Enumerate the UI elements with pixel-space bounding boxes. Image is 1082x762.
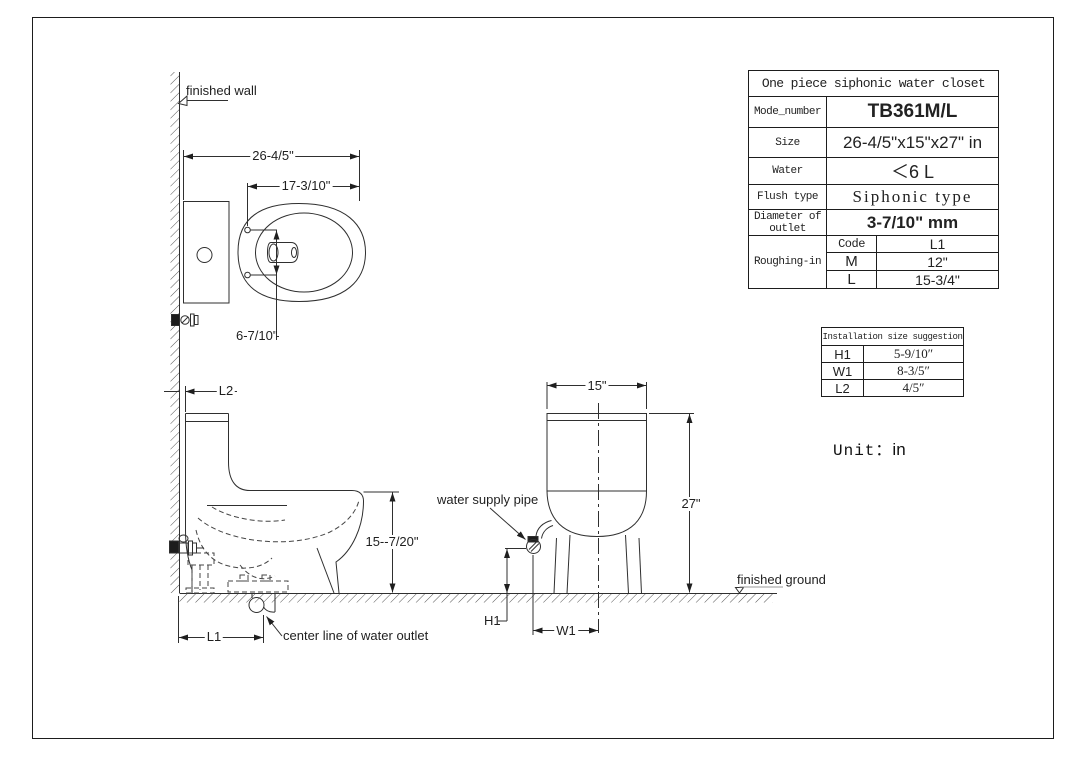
outlet-leader — [267, 617, 283, 637]
plan-hinge-hole-bottom — [245, 272, 251, 278]
finished-ground-label: finished ground — [737, 573, 826, 587]
finished-wall-label: finished wall — [186, 84, 257, 98]
side-flange — [228, 581, 288, 592]
front-bowl — [547, 491, 647, 537]
dim-l1-label: L1 — [205, 630, 223, 644]
spec-value-flush-type: Siphonic type — [827, 185, 999, 210]
dim-total-height-label: 27" — [679, 497, 702, 511]
spec-label-size: Size — [749, 128, 827, 158]
spec-label-water: Water — [749, 158, 827, 185]
spec-table-title: One piece siphonic water closet — [749, 71, 999, 97]
unit-label: Unit： — [833, 442, 892, 460]
roughing-in-code-header: Code — [827, 236, 877, 253]
installation-value-l2: 4/5″ — [864, 380, 964, 397]
drawing-sheet: finished wall 26-4/5" 17-3/10" 6-7/10" L… — [0, 0, 1082, 762]
installation-label-l2: L2 — [822, 380, 864, 397]
plan-hinge-hole-top — [245, 227, 251, 233]
side-dimensions — [164, 386, 399, 643]
front-tank — [547, 414, 647, 492]
plan-bowl-outer — [238, 204, 366, 302]
side-trapway-dashed — [186, 500, 359, 593]
side-outline-right — [229, 414, 364, 594]
dim-w1-label: W1 — [554, 624, 578, 638]
side-base-front — [317, 548, 334, 593]
wall-hatch — [171, 72, 180, 593]
spec-label-diameter: Diameter of outlet — [749, 210, 827, 236]
spec-table: One piece siphonic water closet Mode_num… — [748, 70, 999, 289]
front-leg-1 — [554, 538, 557, 594]
installation-label-w1: W1 — [822, 363, 864, 380]
plan-flush-button — [197, 248, 212, 263]
spec-value-diameter: 3-7/10" mm — [827, 210, 999, 236]
water-supply-pipe-label: water supply pipe — [437, 493, 538, 507]
side-outline-left — [186, 414, 193, 594]
ground-level-marker — [736, 588, 744, 594]
installation-value-h1: 5-9/10″ — [864, 346, 964, 363]
unit-note: Unit：in — [833, 436, 906, 460]
dim-plan-bowl-label: 17-3/10" — [280, 179, 333, 193]
spec-label-roughing-in: Roughing-in — [749, 236, 827, 289]
plan-seat-inner — [256, 213, 353, 292]
front-supply-fixture — [527, 521, 554, 554]
finished-wall — [171, 72, 180, 593]
plan-view — [172, 202, 366, 327]
installation-label-h1: H1 — [822, 346, 864, 363]
installation-table-title: Installation size suggestion — [822, 328, 964, 346]
dim-h1-label: H1 — [484, 614, 501, 628]
spec-value-water: ＜6 L — [827, 158, 999, 185]
roughing-in-code-m: M — [827, 253, 877, 271]
unit-value: in — [892, 440, 905, 459]
dim-plan-depth-label: 26-4/5" — [250, 149, 295, 163]
spec-label-mode-number: Mode_number — [749, 97, 827, 128]
plan-tank — [184, 202, 230, 304]
dim-seat-height-label: 15--7/20" — [363, 535, 420, 549]
dim-tank-width-label: 15" — [585, 379, 608, 393]
spec-label-flush-type: Flush type — [749, 185, 827, 210]
center-line-label: center line of water outlet — [283, 629, 428, 643]
plan-wall-valve — [172, 314, 199, 326]
front-leg-2 — [567, 535, 570, 594]
dim-plan-hinge-label: 6-7/10" — [236, 329, 277, 343]
dim-l2-label: L2 — [217, 384, 235, 398]
ground-hatch — [180, 594, 773, 603]
front-leg-4 — [639, 538, 642, 594]
roughing-in-code-l: L — [827, 271, 877, 289]
side-view — [170, 414, 364, 613]
plan-spud-hole — [292, 248, 297, 258]
roughing-in-value-l: 15-3/4" — [877, 271, 999, 289]
finished-ground-line — [180, 587, 784, 603]
supply-leader — [490, 508, 526, 540]
spec-value-mode-number: TB361M/L — [827, 97, 999, 128]
supply-hose — [536, 521, 552, 537]
plan-spud-body — [268, 243, 299, 263]
spec-value-size: 26-4/5"x15"x27" in — [827, 128, 999, 158]
roughing-in-value-m: 12" — [877, 253, 999, 271]
roughing-in-l1-header: L1 — [877, 236, 999, 253]
installation-value-w1: 8-3/5″ — [864, 363, 964, 380]
front-leg-3 — [626, 535, 629, 594]
installation-table: Installation size suggestion H1 5-9/10″ … — [821, 327, 964, 397]
